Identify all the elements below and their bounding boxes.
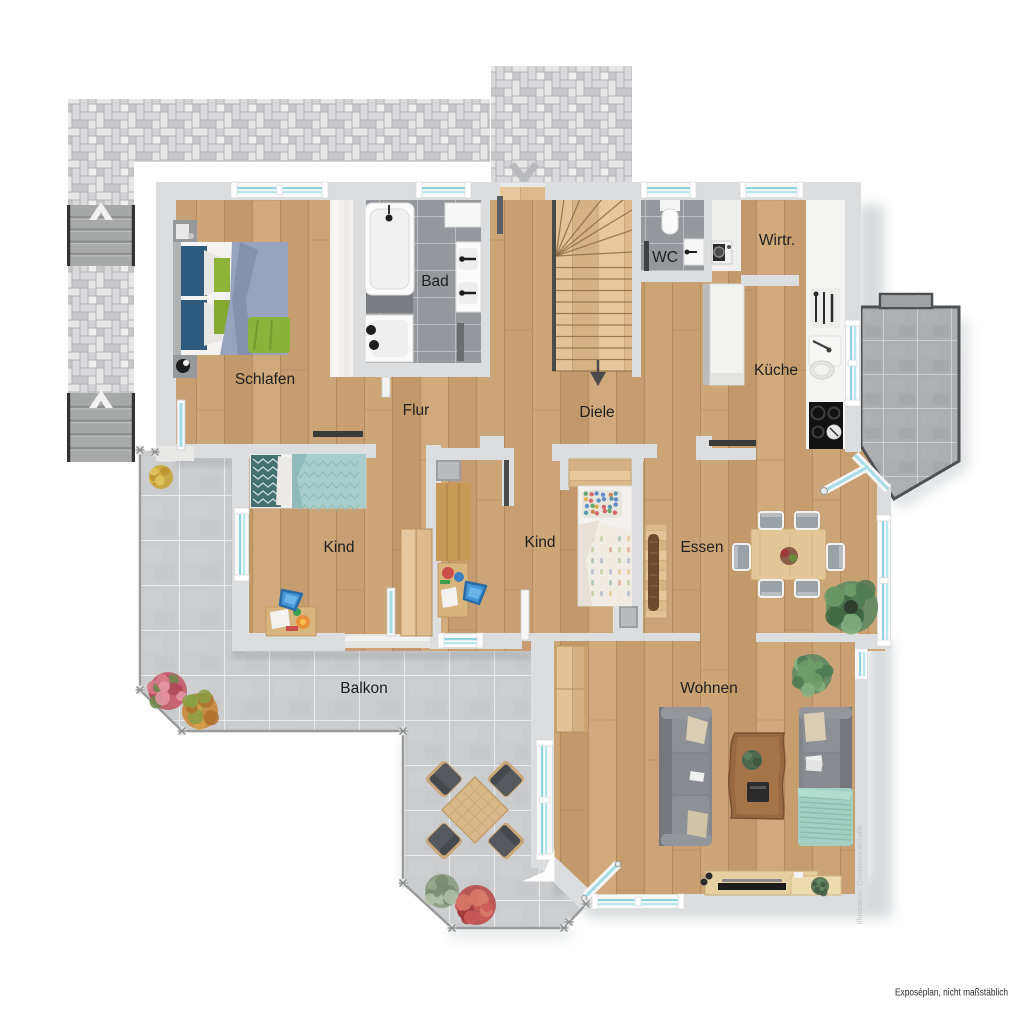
svg-text:Bad: Bad xyxy=(421,273,449,290)
svg-text:WC: WC xyxy=(652,249,678,266)
svg-text:Schlafen: Schlafen xyxy=(235,371,295,388)
svg-text:Flur: Flur xyxy=(403,402,430,419)
svg-text:Illustration: CommunicaGrafik: Illustration: CommunicaGrafik xyxy=(855,826,864,925)
svg-text:Kind: Kind xyxy=(323,539,354,556)
svg-text:Kind: Kind xyxy=(524,534,555,551)
svg-text:Wirtr.: Wirtr. xyxy=(759,232,795,249)
svg-text:Essen: Essen xyxy=(680,539,723,556)
svg-text:Küche: Küche xyxy=(754,362,798,379)
svg-text:Exposéplan, nicht maßstäblich: Exposéplan, nicht maßstäblich xyxy=(895,988,1008,999)
svg-text:Diele: Diele xyxy=(579,404,614,421)
svg-text:Balkon: Balkon xyxy=(340,680,387,697)
svg-text:Wohnen: Wohnen xyxy=(680,680,737,697)
